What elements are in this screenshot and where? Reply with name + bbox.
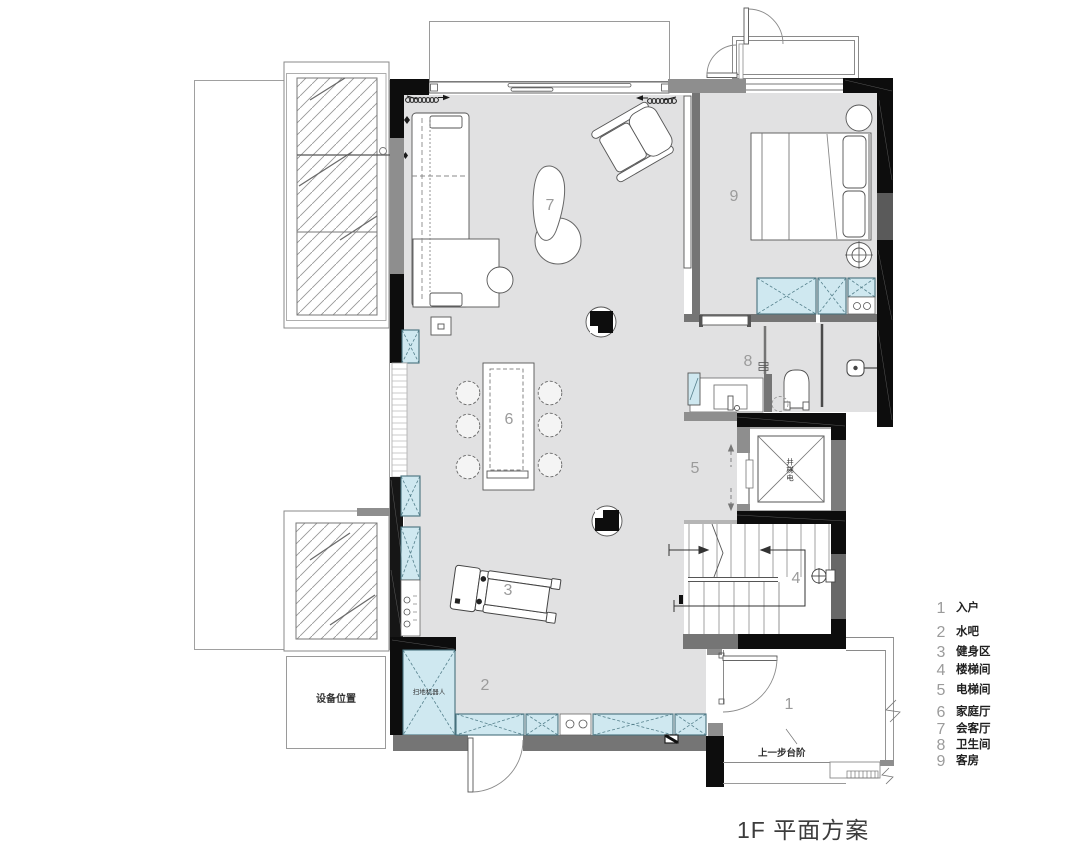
svg-text:上一步台阶: 上一步台阶: [758, 747, 806, 759]
svg-text:9: 9: [937, 753, 946, 770]
svg-text:7: 7: [937, 721, 946, 738]
svg-text:9: 9: [730, 188, 739, 205]
svg-text:7: 7: [546, 197, 555, 214]
svg-text:楼梯间: 楼梯间: [956, 662, 991, 676]
svg-text:健身区: 健身区: [956, 644, 991, 658]
svg-text:4: 4: [937, 662, 946, 679]
svg-text:2: 2: [481, 677, 490, 694]
svg-text:会客厅: 会客厅: [955, 721, 991, 735]
svg-text:1F 平面方案: 1F 平面方案: [737, 817, 869, 843]
svg-text:5: 5: [937, 682, 946, 699]
svg-text:水吧: 水吧: [956, 624, 979, 638]
svg-text:8: 8: [744, 353, 753, 370]
svg-text:电梯间: 电梯间: [956, 682, 991, 696]
svg-text:1: 1: [785, 696, 794, 713]
svg-text:6: 6: [937, 704, 946, 721]
svg-text:6: 6: [505, 411, 514, 428]
svg-text:5: 5: [691, 460, 700, 477]
svg-text:客房: 客房: [955, 753, 979, 767]
svg-text:卫生间: 卫生间: [956, 737, 991, 751]
svg-text:1: 1: [937, 600, 946, 617]
svg-text:设备位置: 设备位置: [316, 692, 356, 705]
svg-text:2: 2: [937, 624, 946, 641]
svg-text:家庭厅: 家庭厅: [956, 704, 991, 718]
svg-text:电: 电: [786, 473, 794, 483]
svg-text:3: 3: [504, 582, 513, 599]
svg-text:入户: 入户: [956, 600, 979, 614]
svg-text:3: 3: [937, 644, 946, 661]
svg-text:4: 4: [792, 570, 801, 587]
svg-text:扫地机器人: 扫地机器人: [413, 687, 446, 696]
svg-text:8: 8: [937, 737, 946, 754]
